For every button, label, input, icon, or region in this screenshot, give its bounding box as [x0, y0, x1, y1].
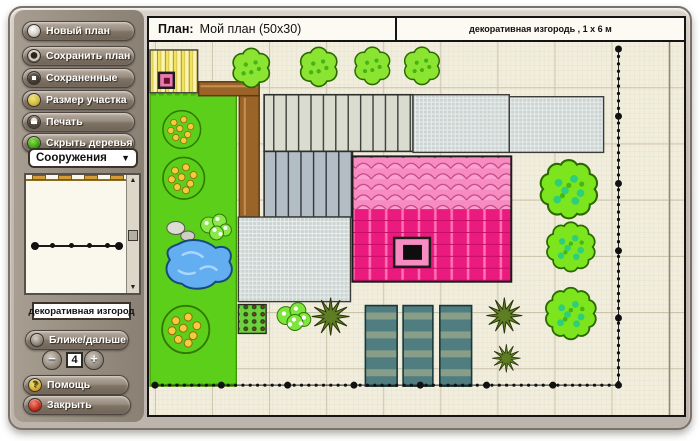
saved-plans-icon	[27, 71, 41, 85]
small-tree	[233, 48, 269, 87]
shed	[150, 50, 198, 93]
plan-prefix: План:	[158, 22, 194, 36]
apple-tree	[162, 306, 209, 353]
vegetable-beds	[365, 306, 471, 387]
print-label: Печать	[46, 116, 83, 128]
selected-item-info: декоративная изгородь , 1 х 6 м	[397, 18, 684, 40]
new-plan-label: Новый план	[46, 25, 110, 37]
preview-scrollbar[interactable]: ▲ ▼	[126, 175, 139, 293]
new-plan-button[interactable]: Новый план	[22, 21, 135, 41]
structures-dropdown-value: Сооружения	[36, 152, 107, 164]
close-label: Закрыть	[47, 399, 92, 411]
save-plan-icon	[27, 49, 41, 63]
save-plan-label: Сохранить план	[46, 50, 130, 62]
print-button[interactable]: Печать	[22, 112, 135, 132]
roof-light-planks	[264, 95, 413, 152]
print-icon	[27, 115, 41, 129]
app-window: Новый план Сохранить план Сохраненные Ра…	[8, 6, 692, 430]
help-button[interactable]: Помощь	[23, 375, 129, 395]
zoom-out-button[interactable]: −	[42, 350, 62, 370]
scrollbar-thumb[interactable]	[128, 230, 138, 241]
paved-area-b	[509, 97, 603, 153]
small-tree	[405, 47, 440, 84]
zoom-label: Ближе/дальше	[49, 334, 126, 346]
close-button[interactable]: Закрыть	[23, 395, 131, 415]
plan-name: Мой план (50x30)	[200, 22, 302, 36]
new-plan-icon	[27, 24, 41, 38]
zoom-level-value: 4	[66, 352, 83, 368]
large-tree	[547, 222, 595, 271]
scroll-down-icon[interactable]: ▼	[127, 282, 139, 293]
save-plan-button[interactable]: Сохранить план	[22, 46, 135, 66]
chevron-down-icon: ▼	[121, 153, 130, 163]
structures-preview-list: ▲ ▼	[24, 173, 141, 295]
help-label: Помощь	[47, 379, 90, 391]
plan-canvas-frame	[147, 42, 686, 417]
plan-title: План: Мой план (50x30)	[149, 18, 397, 40]
fence-post-icon	[58, 175, 72, 180]
large-tree	[541, 160, 597, 218]
scroll-up-icon[interactable]: ▲	[127, 175, 139, 186]
garden-plan-canvas[interactable]	[149, 42, 684, 415]
saved-plans-button[interactable]: Сохраненные	[22, 68, 135, 88]
plot-size-button[interactable]: Размер участка	[22, 90, 135, 110]
decorative-fence-item[interactable]	[31, 241, 123, 250]
zoom-button[interactable]: Ближе/дальше	[25, 330, 129, 350]
saved-plans-label: Сохраненные	[46, 72, 118, 84]
house	[352, 156, 511, 281]
zoom-in-button[interactable]: +	[84, 350, 104, 370]
pond	[166, 240, 231, 289]
sidebar: Новый план Сохранить план Сохраненные Ра…	[14, 10, 144, 422]
fence-post-icon	[110, 175, 124, 180]
courtyard-paving	[238, 217, 350, 302]
selected-structure-caption: декоративная изгород	[32, 302, 131, 320]
paved-area-a	[413, 95, 509, 153]
small-tree	[355, 47, 390, 84]
fence-post-icon	[84, 175, 98, 180]
zoom-icon	[30, 333, 44, 347]
plot-size-label: Размер участка	[46, 94, 127, 106]
large-tree	[546, 288, 596, 340]
plot-size-icon	[27, 93, 41, 107]
help-icon	[28, 378, 42, 392]
small-tree	[301, 47, 337, 86]
close-icon	[28, 398, 42, 412]
apple-tree	[163, 111, 201, 149]
structures-dropdown[interactable]: Сооружения ▼	[28, 148, 138, 168]
fence-post-icon	[32, 175, 46, 180]
plan-title-bar: План: Мой план (50x30) декоративная изго…	[147, 16, 686, 42]
apple-tree	[163, 157, 204, 199]
flower-bed	[238, 305, 266, 334]
roof-gray-planks	[264, 151, 352, 217]
